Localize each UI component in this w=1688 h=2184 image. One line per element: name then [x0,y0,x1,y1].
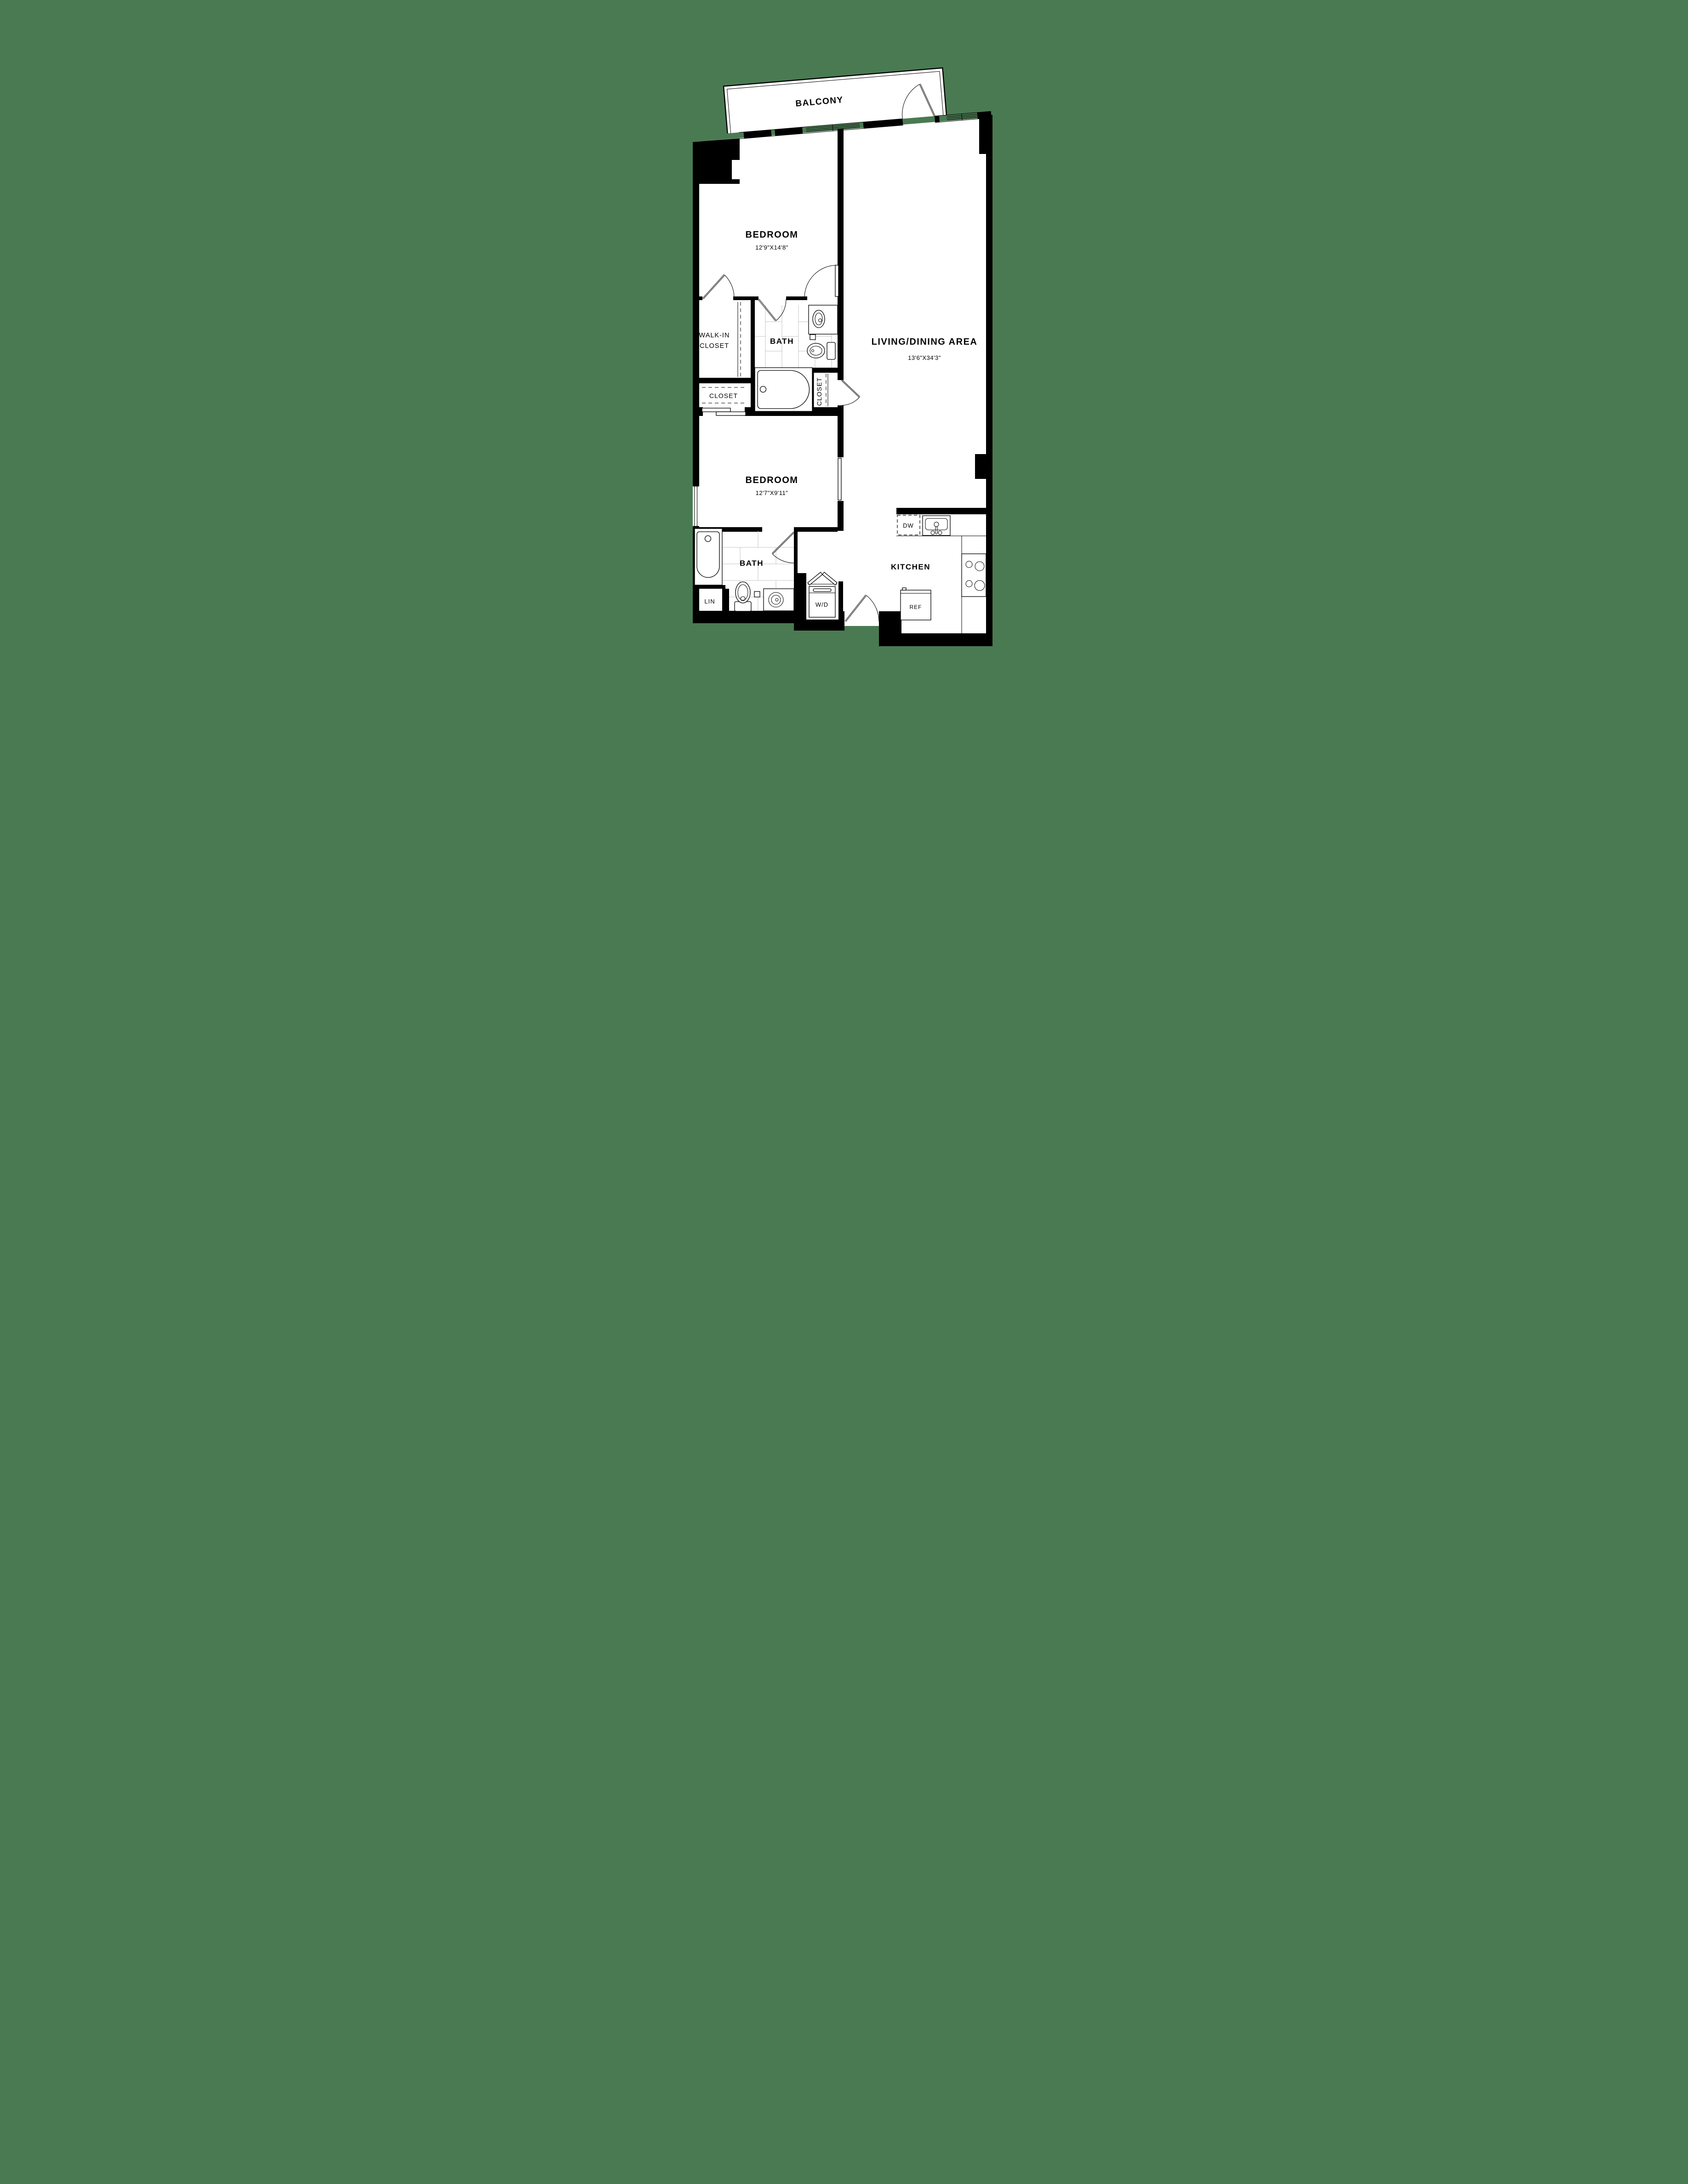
wd-label: W/D [815,601,828,608]
living-label: LIVING/DINING AREA [872,337,978,347]
walkin-label-line2: CLOSET [700,342,729,350]
wall-midcloset-top [814,368,839,373]
closet-mid-label: CLOSET [815,377,823,406]
refrigerator-label: REF [910,604,922,610]
bedroom2-door-leaf [838,458,841,500]
kitchen-label: KITCHEN [891,563,930,571]
bath1-tp-holder [810,335,815,340]
wd-appliance-handle [813,589,831,591]
bedroom2-window [693,486,699,526]
wall-bath2-top [794,527,838,532]
wall-divider-upper [838,129,844,380]
wall-bottom-kitchen [901,633,992,646]
floorplan-page: BALCONY [563,0,1125,728]
closet-small-label: CLOSET [709,392,738,399]
wall-bed1-bottom [699,296,702,300]
bath2-label: BATH [740,559,764,568]
bedroom1-label: BEDROOM [746,230,798,240]
bath1-label: BATH [770,337,794,346]
wall-bath2-right [794,532,798,573]
linen-label: LIN [704,598,715,605]
wall-bed1-bottom [786,296,807,300]
wall-kitchen-top [896,508,992,514]
wall-lin-top [695,585,725,589]
wall-lin-right [722,589,729,611]
top-wall-segment [935,116,940,123]
wall-entry-right [879,611,901,646]
bedroom2-dims: 12'7"X9'11" [756,489,788,496]
wall-bed1-bottom [733,296,758,300]
wall-entry-jamb [843,611,844,626]
bath2-tub-faucet [705,536,711,542]
bedroom1-dims: 12'9"X14'8" [755,244,788,251]
bedroom2-label: BEDROOM [746,475,798,485]
wall-wd-bottom [794,620,844,631]
wall-right [986,117,992,646]
bath2-tp-holder [754,591,760,597]
wall-left-upper [693,183,699,486]
dishwasher-label: DW [903,522,914,529]
floorplan-svg: BALCONY [563,0,1125,728]
wall-walkin-bath1 [751,300,755,407]
closet-small-slider-panel [716,412,746,415]
bath2-toilet-icon [735,582,751,611]
living-dims: 13'6"X34'3" [908,354,941,361]
walkin-label-line1: WALK-IN [699,332,730,339]
bath2-vanity [764,589,794,611]
wall-right-notch [975,454,986,479]
bath1-tub-faucet [760,387,766,392]
closet-small-slider-panel [702,408,730,412]
kitchen-sink-icon [923,516,950,535]
wall-right-top-corner [979,115,992,154]
stove-icon [962,554,986,597]
bath1-toilet-icon [807,342,835,359]
wall-topleft-notch [732,160,740,179]
wall-bottom-bath [693,611,798,623]
wall-walkin-bottom [699,378,751,383]
wall-divider-lower [838,501,844,531]
